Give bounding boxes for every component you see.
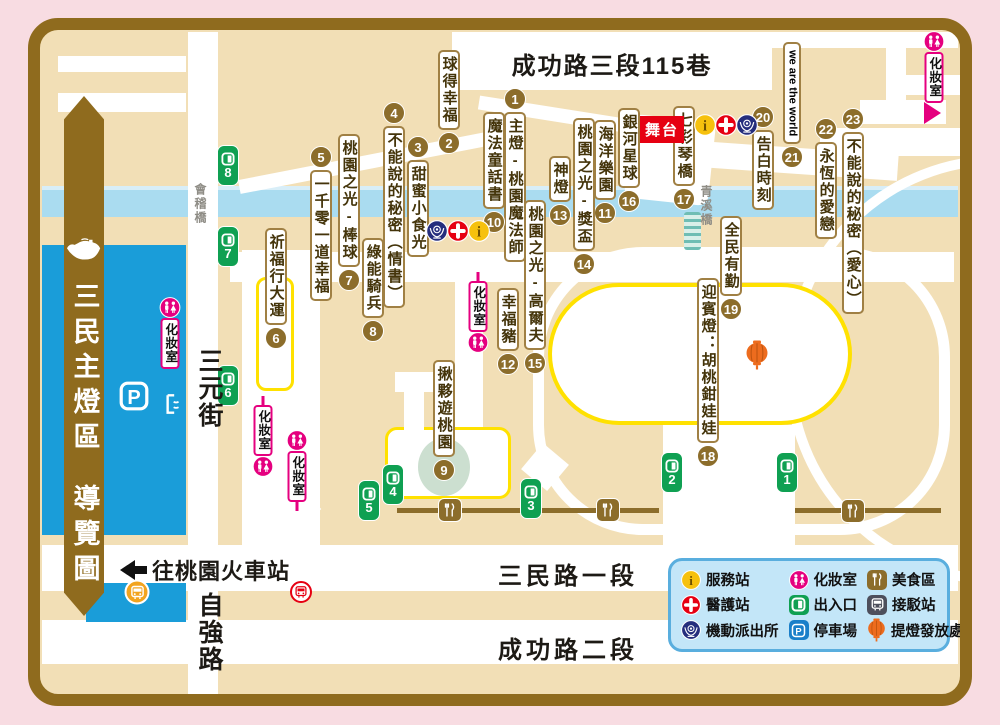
legend-item-police: 機動派出所 xyxy=(681,620,779,641)
restroom-marker-2: 化妝室 xyxy=(160,297,181,369)
medical-icon xyxy=(681,595,701,615)
exit-door-icon xyxy=(780,459,794,473)
restroom-label: 化妝室 xyxy=(288,451,306,502)
lantern-marker-18: 迎賓燈：胡桃鉗娃娃18 xyxy=(697,278,719,467)
lantern-label: 桃園之光-高爾夫 xyxy=(524,200,545,350)
food-area-icon-3 xyxy=(841,499,865,523)
road-label-chenggong3: 成功路三段115巷 xyxy=(462,46,762,81)
map-canvas: 成功路三段115巷 三民路一段 成功路二段 三元街 自強路 會稽橋 青溪橋 舞台… xyxy=(40,30,960,694)
lantern-marker-16: 銀河星球16 xyxy=(618,108,640,212)
lantern-label: 綠能騎兵 xyxy=(362,238,383,318)
lantern-marker-22: 22永恆的愛戀 xyxy=(815,118,837,239)
lantern-label: 主燈-桃園魔法師 xyxy=(504,112,525,262)
food-area-icon xyxy=(867,570,887,590)
restroom-icon xyxy=(468,332,489,353)
legend-item-exitdoor: 出入口 xyxy=(789,594,858,615)
lantern-number-badge: 2 xyxy=(438,132,460,154)
lantern-label: 幸福豬 xyxy=(497,288,518,351)
restroom-icon xyxy=(253,456,274,477)
lantern-label: 全民有勤 xyxy=(720,216,741,296)
banner-title-line2: 導覽圖 xyxy=(71,484,98,589)
lantern-label: 祈福行大運 xyxy=(265,228,286,325)
legend-label: 醫護站 xyxy=(706,594,750,615)
legend-label: 化妝室 xyxy=(814,569,858,590)
road-label-sanmin1: 三民路一段 xyxy=(428,556,708,591)
restroom-label: 化妝室 xyxy=(469,281,487,332)
lantern-marker-21: we are the world21 xyxy=(781,42,803,168)
legend-label: 服務站 xyxy=(706,569,750,590)
exit-marker-2: 2 xyxy=(661,452,683,493)
lantern-marker-12: 幸福豬12 xyxy=(497,288,519,375)
restroom-pin xyxy=(262,396,265,405)
street-label-sanyuan: 三元街 xyxy=(191,348,227,429)
exit-number: 2 xyxy=(668,473,675,486)
exit-door-icon xyxy=(362,487,376,501)
lantern-number-badge: 16 xyxy=(618,190,640,212)
lantern-marker-5: 5一千零一道幸福 xyxy=(310,146,332,301)
legend-label: 提燈發放處 xyxy=(891,620,960,641)
banner-title-line1: 三民主燈區 xyxy=(71,282,98,457)
legend-item-lantern: 提燈發放處 xyxy=(867,618,960,642)
exit-door-icon xyxy=(386,471,400,485)
stage-label: 舞台 xyxy=(640,116,684,143)
bridge-label-huiji: 會稽橋 xyxy=(192,183,209,225)
exit-door-icon xyxy=(524,485,538,499)
info-station-icon: i xyxy=(468,220,490,242)
lantern-label: 海洋樂園 xyxy=(594,120,615,200)
svg-text:i: i xyxy=(477,225,481,241)
medical-station-icon xyxy=(447,220,469,242)
restroom-icon xyxy=(924,31,945,52)
map-title-banner: 三民主燈區 導覽圖 xyxy=(64,96,104,616)
lantern-marker-11: 海洋樂園11 xyxy=(594,120,616,224)
lantern-label: 銀河星球 xyxy=(618,108,639,188)
lantern-number-badge: 17 xyxy=(673,188,695,210)
lantern-marker-10: 魔法童話書10 xyxy=(483,112,505,233)
lantern-marker-13: 神燈13 xyxy=(549,156,571,226)
left-arrow-icon xyxy=(120,560,148,580)
exit-number: 8 xyxy=(224,166,231,179)
exit-door-icon xyxy=(221,152,235,166)
exit-number: 1 xyxy=(783,473,790,486)
genie-lamp-icon xyxy=(66,238,102,261)
exit-door-icon xyxy=(221,233,235,247)
lantern-label: 揪夥遊桃園 xyxy=(433,360,454,457)
lantern-marker-15: 桃園之光-高爾夫15 xyxy=(524,200,546,374)
food-area-icon-2 xyxy=(596,498,620,522)
restroom-label: 化妝室 xyxy=(925,52,943,103)
exit-marker-7: 7 xyxy=(217,226,239,267)
lantern-number-badge: 23 xyxy=(842,108,864,130)
legend-label: 停車場 xyxy=(814,620,858,641)
lantern-number-badge: 3 xyxy=(407,136,429,158)
lantern-number-badge: 15 xyxy=(524,352,546,374)
exit-marker-8: 8 xyxy=(217,145,239,186)
lantern-marker-23: 23不能說的秘密（愛心） xyxy=(842,108,864,314)
lantern-number-badge: 6 xyxy=(265,327,287,349)
lantern-label: 甜蜜小食光 xyxy=(407,160,428,257)
lantern-number-badge: 1 xyxy=(504,88,526,110)
exit-number: 4 xyxy=(389,485,396,498)
info-icon: i xyxy=(681,570,701,590)
lantern-label: 永恆的愛戀 xyxy=(815,142,836,239)
lantern-label: 不能說的秘密（愛心） xyxy=(842,132,863,314)
legend-item-food: 美食區 xyxy=(867,569,960,590)
svg-text:P: P xyxy=(795,626,801,636)
lantern-marker-8: 綠能騎兵8 xyxy=(362,238,384,342)
lantern-pickup-icon xyxy=(867,618,886,642)
lantern-number-badge: 19 xyxy=(720,298,742,320)
exit-door-icon xyxy=(665,459,679,473)
train-station-note: 往桃園火車站 xyxy=(152,554,312,586)
info-station-icon: i xyxy=(694,114,716,136)
street-label-ziqiang: 自強路 xyxy=(191,592,227,673)
legend-items: i服務站醫護站機動派出所化妝室出入口P停車場美食區接駁站提燈發放處 xyxy=(671,561,947,649)
lantern-number-badge: 9 xyxy=(433,459,455,481)
lantern-number-badge: 21 xyxy=(781,146,803,168)
lantern-number-badge: 5 xyxy=(310,146,332,168)
restroom-icon xyxy=(789,570,809,590)
lantern-label: 神燈 xyxy=(549,156,570,202)
restroom-label: 化妝室 xyxy=(254,405,272,456)
lantern-number-badge: 7 xyxy=(338,269,360,291)
lantern-marker-7: 桃園之光-棒球7 xyxy=(338,134,360,291)
restroom-label: 化妝室 xyxy=(161,318,179,369)
legend-label: 出入口 xyxy=(814,594,858,615)
lantern-number-badge: 22 xyxy=(815,118,837,140)
path-topright-4 xyxy=(820,128,960,156)
exit-number: 5 xyxy=(365,501,372,514)
lantern-marker-6: 祈福行大運6 xyxy=(265,228,287,349)
legend-item-parking: P停車場 xyxy=(789,620,858,641)
svg-text:P: P xyxy=(127,387,140,409)
lantern-festival-guide-map: 成功路三段115巷 三民路一段 成功路二段 三元街 自強路 會稽橋 青溪橋 舞台… xyxy=(0,0,1000,725)
lantern-number-badge: 8 xyxy=(362,320,384,342)
police-icon xyxy=(681,620,701,640)
lantern-marker-19: 全民有勤19 xyxy=(720,216,742,320)
police-station-icon xyxy=(736,114,758,136)
continuation-arrow-icon xyxy=(924,102,941,124)
lantern-pickup-icon xyxy=(745,340,769,370)
exit-marker-4: 4 xyxy=(382,464,404,505)
legend-item-restroom: 化妝室 xyxy=(789,569,858,590)
lantern-number-badge: 4 xyxy=(383,102,405,124)
shuttle-bus-icon xyxy=(125,580,150,605)
parking-icon: P xyxy=(118,380,150,412)
exit-number: 3 xyxy=(527,499,534,512)
lantern-number-badge: 12 xyxy=(497,353,519,375)
lantern-marker-9: 揪夥遊桃園9 xyxy=(433,360,455,481)
exit-marker-5: 5 xyxy=(358,480,380,521)
exit-marker-1: 1 xyxy=(776,452,798,493)
exit-number: 7 xyxy=(224,247,231,260)
food-line-right xyxy=(795,508,941,513)
lantern-number-badge: 11 xyxy=(594,202,616,224)
lantern-label: 魔法童話書 xyxy=(483,112,504,209)
lantern-label: we are the world xyxy=(783,42,802,144)
legend-item-info: i服務站 xyxy=(681,569,779,590)
lantern-label: 迎賓燈：胡桃鉗娃娃 xyxy=(697,278,718,443)
pond-parking-area xyxy=(42,245,186,535)
bridge-label-qingxi: 青溪橋 xyxy=(698,185,715,227)
building-1b xyxy=(404,386,424,440)
pier-icon xyxy=(164,392,180,416)
restroom-marker-5: 化妝室 xyxy=(468,272,489,353)
legend-label: 機動派出所 xyxy=(706,620,779,641)
restroom-pin xyxy=(477,272,480,281)
medical-station-icon xyxy=(715,114,737,136)
lantern-number-badge: 13 xyxy=(549,204,571,226)
restroom-icon xyxy=(287,430,308,451)
lantern-marker-14: 桃園之光-獎盃14 xyxy=(573,118,595,275)
legend-item-medical: 醫護站 xyxy=(681,594,779,615)
police-station-icon xyxy=(426,220,448,242)
shuttle-bus-icon xyxy=(867,595,887,615)
lantern-number-badge: 14 xyxy=(573,253,595,275)
svg-text:i: i xyxy=(689,573,693,588)
lantern-label: 告白時刻 xyxy=(752,130,773,210)
exit-door-icon xyxy=(789,595,809,615)
lantern-number-badge: 18 xyxy=(697,445,719,467)
legend-label: 接駁站 xyxy=(892,594,936,615)
lantern-label: 桃園之光-獎盃 xyxy=(573,118,594,251)
legend-label: 美食區 xyxy=(892,569,936,590)
restroom-marker-4: 化妝室 xyxy=(287,430,308,511)
legend-item-bus: 接駁站 xyxy=(867,594,960,615)
restroom-marker-1: 化妝室 xyxy=(924,31,945,103)
lantern-label: 球得幸福 xyxy=(438,50,459,130)
lantern-label: 一千零一道幸福 xyxy=(310,170,331,301)
parking-icon: P xyxy=(789,620,809,640)
lantern-marker-2: 球得幸福2 xyxy=(438,50,460,154)
road-slot-left-1 xyxy=(58,56,186,72)
restroom-pin xyxy=(296,502,299,511)
road-label-chenggong2: 成功路二段 xyxy=(428,630,708,665)
lantern-marker-4: 4不能說的秘密（情書） xyxy=(383,102,405,308)
svg-text:i: i xyxy=(703,119,707,135)
map-legend: i服務站醫護站機動派出所化妝室出入口P停車場美食區接駁站提燈發放處 xyxy=(668,558,950,652)
exit-marker-3: 3 xyxy=(520,478,542,519)
restroom-icon xyxy=(160,297,181,318)
lantern-label: 桃園之光-棒球 xyxy=(338,134,359,267)
restroom-marker-3: 化妝室 xyxy=(253,396,274,477)
lantern-marker-1: 1主燈-桃園魔法師 xyxy=(504,88,526,262)
lantern-label: 不能說的秘密（情書） xyxy=(383,126,404,308)
food-area-icon-1 xyxy=(438,498,462,522)
